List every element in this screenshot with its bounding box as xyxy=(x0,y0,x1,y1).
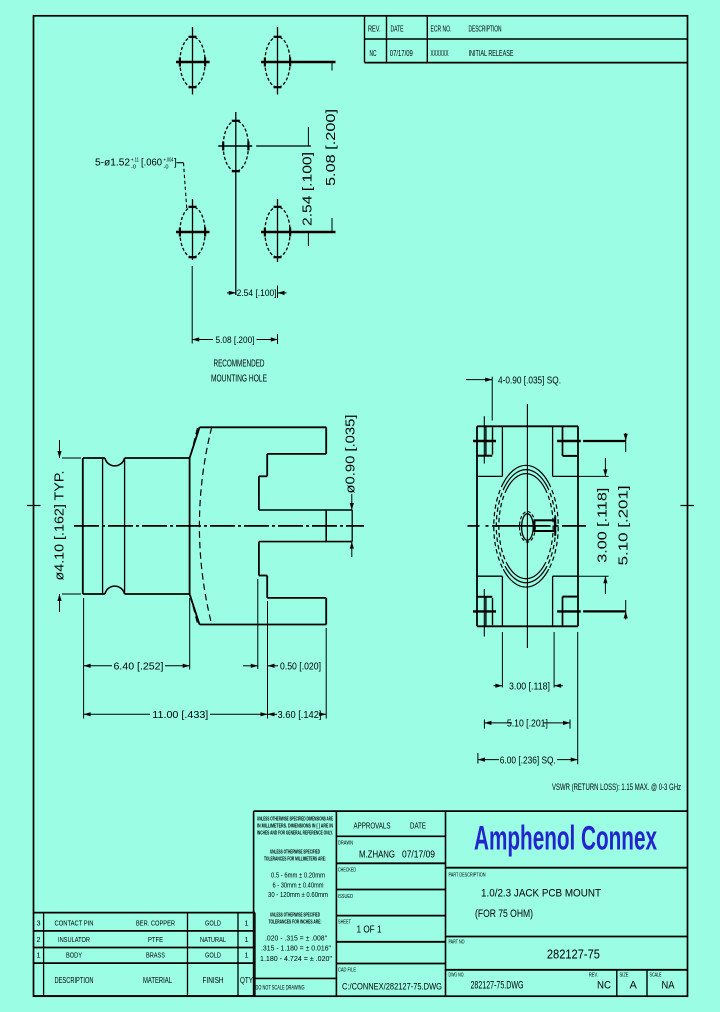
svg-text:DWG NO.: DWG NO. xyxy=(449,973,465,979)
svg-text:NA: NA xyxy=(662,980,676,992)
svg-text:NC: NC xyxy=(370,49,377,58)
svg-text:ISSUED: ISSUED xyxy=(338,894,353,900)
svg-text:Amphenol Connex: Amphenol Connex xyxy=(474,820,657,858)
svg-text:TOLERANCES FOR MILLIMETERS ARE: TOLERANCES FOR MILLIMETERS ARE: xyxy=(264,857,326,863)
svg-text:UNLESS OTHERWISE SPECIFIED DIM: UNLESS OTHERWISE SPECIFIED DIMENSIONS AR… xyxy=(257,817,333,823)
svg-text:1.0/2.3 JACK PCB MOUNT: 1.0/2.3 JACK PCB MOUNT xyxy=(481,888,601,900)
svg-text:6.00 [.236] SQ.: 6.00 [.236] SQ. xyxy=(500,755,556,766)
svg-text:INITIAL RELEASE: INITIAL RELEASE xyxy=(469,49,514,58)
svg-text:282127-75: 282127-75 xyxy=(547,947,600,962)
svg-text:M.ZHANG: M.ZHANG xyxy=(359,850,395,861)
svg-text:1: 1 xyxy=(37,951,41,960)
svg-text:4-0.90 [.035] SQ.: 4-0.90 [.035] SQ. xyxy=(498,375,561,386)
svg-text:2: 2 xyxy=(37,935,41,944)
svg-text:3.60 [.142]: 3.60 [.142] xyxy=(278,710,322,721)
svg-text:3: 3 xyxy=(37,918,41,927)
svg-text:PART NO: PART NO xyxy=(449,940,465,946)
svg-text:3.00 [.118]: 3.00 [.118] xyxy=(509,681,550,692)
svg-text:1: 1 xyxy=(245,951,249,960)
svg-text:SCALE: SCALE xyxy=(650,973,662,979)
svg-text:GOLD: GOLD xyxy=(205,951,221,960)
svg-text:5.08 [.200]: 5.08 [.200] xyxy=(216,335,255,346)
svg-text:NATURAL: NATURAL xyxy=(200,935,226,944)
svg-text:5.10 [.201]: 5.10 [.201] xyxy=(616,485,631,565)
svg-text:XXXXXX: XXXXXX xyxy=(431,49,449,58)
svg-text:(FOR 75 OHM): (FOR 75 OHM) xyxy=(475,908,533,920)
svg-text:PTFE: PTFE xyxy=(148,935,163,944)
svg-text:QTY: QTY xyxy=(240,976,254,985)
svg-text:ø4.10 [.162] TYP.: ø4.10 [.162] TYP. xyxy=(52,471,67,581)
svg-text:+.11: +.11 xyxy=(131,158,139,164)
svg-text:-0: -0 xyxy=(131,164,136,170)
svg-text:.315 - 1.180 = ± 0.016": .315 - 1.180 = ± 0.016" xyxy=(261,944,331,953)
svg-text:CAD FILE: CAD FILE xyxy=(338,968,356,974)
svg-text:2.54 [.100]: 2.54 [.100] xyxy=(237,288,277,299)
svg-text:FINISH: FINISH xyxy=(203,976,224,985)
svg-text:-0: -0 xyxy=(164,164,169,170)
svg-text:07/17/09: 07/17/09 xyxy=(402,850,435,861)
svg-text:VSWR (RETURN LOSS): 1.15 MAX.: VSWR (RETURN LOSS): 1.15 MAX. @ 0-3 GHz xyxy=(552,782,681,792)
svg-text:UNLESS OTHERWISE SPECIFIED: UNLESS OTHERWISE SPECIFIED xyxy=(270,850,320,856)
svg-text:TOLERANCES FOR INCHES ARE:: TOLERANCES FOR INCHES ARE: xyxy=(269,920,322,926)
svg-text:MATERIAL: MATERIAL xyxy=(143,976,172,985)
svg-text:SIZE: SIZE xyxy=(620,973,629,979)
svg-text:IN MILLIMETERS. DIMENSIONS IN: IN MILLIMETERS. DIMENSIONS IN [ ] ARE IN xyxy=(257,824,333,830)
svg-text:5.08 [.200]: 5.08 [.200] xyxy=(323,109,338,186)
svg-text:6 - 30mm ± 0.40mm: 6 - 30mm ± 0.40mm xyxy=(273,881,324,890)
svg-text:+.004: +.004 xyxy=(164,158,174,164)
svg-text:A: A xyxy=(630,980,638,992)
svg-text:RECOMMENDED: RECOMMENDED xyxy=(214,359,265,370)
svg-text:SHEET: SHEET xyxy=(338,920,352,926)
svg-text:APPROVALS: APPROVALS xyxy=(354,821,391,831)
svg-text:282127-75.DWG: 282127-75.DWG xyxy=(471,980,524,992)
svg-text:MOUNTING HOLE: MOUNTING HOLE xyxy=(211,374,267,385)
svg-text:DATE: DATE xyxy=(391,24,404,33)
svg-text:BER. COPPER: BER. COPPER xyxy=(136,918,175,927)
svg-text:DATE: DATE xyxy=(410,821,426,831)
svg-text:30 - 120mm ± 0.60mm: 30 - 120mm ± 0.60mm xyxy=(268,890,328,899)
svg-text:07/17/09: 07/17/09 xyxy=(390,49,413,58)
svg-text:2.54 [.100]: 2.54 [.100] xyxy=(300,152,315,226)
svg-text:1.180 - 4.724 = ± .020": 1.180 - 4.724 = ± .020" xyxy=(260,954,332,963)
svg-text:3.00 [.118]: 3.00 [.118] xyxy=(595,488,610,563)
svg-text:REV.: REV. xyxy=(368,24,381,33)
svg-text:0.5 - 6mm ± 0.20mm: 0.5 - 6mm ± 0.20mm xyxy=(271,871,325,880)
svg-text:UNLESS OTHERWISE SPECIFIED: UNLESS OTHERWISE SPECIFIED xyxy=(270,913,320,919)
svg-text:ECR NO.: ECR NO. xyxy=(431,24,452,33)
svg-text:0.50 [.020]: 0.50 [.020] xyxy=(280,662,321,673)
svg-text:DRAWN: DRAWN xyxy=(338,841,353,847)
svg-text:DESCRIPTION: DESCRIPTION xyxy=(469,24,502,33)
svg-text:INSULATOR: INSULATOR xyxy=(58,935,90,944)
svg-text:GOLD: GOLD xyxy=(205,918,221,927)
svg-text:[.060: [.060 xyxy=(141,158,162,169)
svg-text:CHECKED: CHECKED xyxy=(338,868,356,874)
svg-text:6.40 [.252]: 6.40 [.252] xyxy=(114,662,164,673)
svg-text:BRASS: BRASS xyxy=(146,951,165,960)
svg-text:DESCRIPTION: DESCRIPTION xyxy=(55,976,94,985)
svg-text:11.00 [.433]: 11.00 [.433] xyxy=(152,710,208,721)
svg-text:1 OF 1: 1 OF 1 xyxy=(357,925,382,936)
svg-text:5-ø1.52: 5-ø1.52 xyxy=(95,158,130,169)
svg-text:ø0.90 [.035]: ø0.90 [.035] xyxy=(343,415,358,494)
svg-text:NC: NC xyxy=(597,980,611,992)
svg-text:C:/CONNEX/282127-75.DWG: C:/CONNEX/282127-75.DWG xyxy=(342,982,442,992)
svg-text:REV.: REV. xyxy=(589,973,598,979)
svg-text:1: 1 xyxy=(245,935,249,944)
svg-text:DO NOT SCALE DRAWING: DO NOT SCALE DRAWING xyxy=(256,985,305,992)
svg-text:5.10 [.201]: 5.10 [.201] xyxy=(507,719,548,730)
svg-text:1: 1 xyxy=(245,918,249,927)
svg-text:BODY: BODY xyxy=(66,951,82,960)
svg-text:.020 - .315 = ± .008": .020 - .315 = ± .008" xyxy=(265,934,327,943)
svg-text:INCHES AND FOR GENERAL REFEREN: INCHES AND FOR GENERAL REFERENCE ONLY. xyxy=(257,831,333,837)
svg-text:CONTACT PIN: CONTACT PIN xyxy=(55,918,94,927)
svg-text:PART DESCRIPTION: PART DESCRIPTION xyxy=(449,873,486,879)
